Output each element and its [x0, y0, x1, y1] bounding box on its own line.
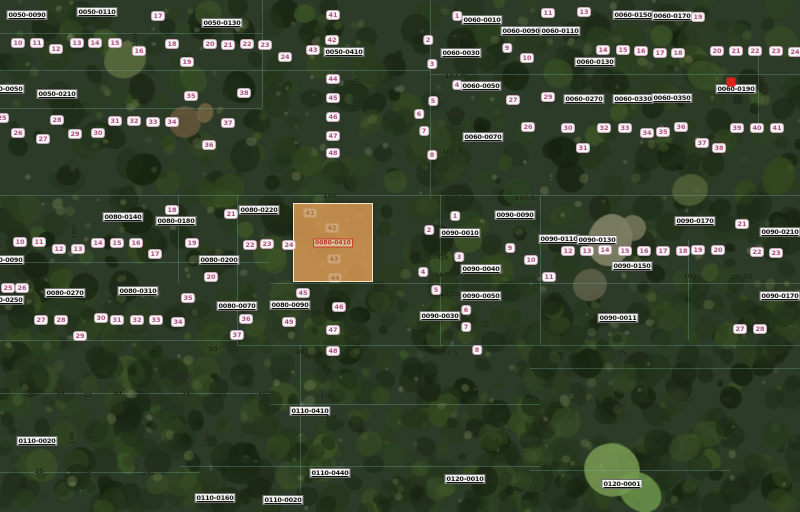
dimension-label: 100	[70, 225, 78, 239]
parcel-id-label[interactable]: 0080-0070	[216, 301, 257, 311]
lot-number-label: 24	[282, 240, 296, 250]
parcel-id-label[interactable]: 0060-0070	[462, 132, 503, 142]
parcel-id-label[interactable]: 0050-0090	[6, 10, 47, 20]
lot-number-label: 16	[637, 246, 651, 256]
lot-number-label: 16	[634, 46, 648, 56]
dimension-label: 107	[89, 430, 97, 444]
parcel-id-label[interactable]: 0090-0011	[597, 313, 638, 323]
dimension-label: 25	[141, 469, 150, 477]
dimension-label: 110	[353, 78, 361, 92]
dimension-label: 25	[683, 395, 692, 403]
lot-number-label: 23	[258, 40, 272, 50]
lot-number-label: 14	[91, 238, 105, 248]
lot-number-label: 2	[423, 35, 433, 45]
parcel-id-label[interactable]: 0090-0170	[759, 291, 800, 301]
lot-number-label: 13	[577, 7, 591, 17]
lot-number-label: 43	[306, 45, 320, 55]
lot-number-label: 31	[108, 116, 122, 126]
lot-number-label: 12	[49, 44, 63, 54]
dimension-label: 25	[140, 392, 149, 400]
lot-number-label: 13	[71, 244, 85, 254]
parcel-id-label[interactable]: 0060-0010	[461, 15, 502, 25]
dimension-label: 75	[772, 349, 781, 357]
dimension-label: 75	[743, 273, 752, 281]
dimension-label: 100	[320, 392, 334, 400]
lot-number-label: 16	[132, 46, 146, 56]
lot-number-label: 26	[521, 122, 535, 132]
dimension-label: 25	[152, 346, 161, 354]
parcel-id-label[interactable]: 0110-0020	[262, 495, 303, 505]
parcel-id-label[interactable]: 0080-0220	[238, 205, 279, 215]
lot-number-label: 38	[712, 143, 726, 153]
lot-number-label: 17	[656, 246, 670, 256]
dimension-label: 107.0	[445, 72, 466, 80]
parcel-id-label[interactable]: 0090-0010	[439, 228, 480, 238]
lot-number-label: 47	[326, 131, 340, 141]
lot-number-label: 24	[278, 52, 292, 62]
parcel-id-label[interactable]: 0090-0170	[674, 216, 715, 226]
lot-number-label: 41	[770, 123, 784, 133]
lot-number-label: 5	[431, 285, 441, 295]
lot-number-label: 44	[326, 74, 340, 84]
lot-number-label: 32	[127, 116, 141, 126]
lot-number-label: 36	[202, 140, 216, 150]
parcel-id-label[interactable]: 0120-0001	[601, 479, 642, 489]
dimension-label: 50	[528, 395, 537, 403]
dimension-label: 107.5	[440, 290, 461, 298]
parcel-id-label[interactable]: 0080-0250	[0, 295, 25, 305]
parcel-id-label[interactable]: 0080-0310	[117, 286, 158, 296]
lot-number-label: 25	[1, 283, 15, 293]
dimension-label: 107.5	[445, 194, 466, 202]
lot-number-label: 18	[671, 48, 685, 58]
lot-number-label: 22	[748, 46, 762, 56]
dimension-label: 107.5	[448, 33, 469, 41]
parcel-id-label[interactable]: 0080-0090	[269, 300, 310, 310]
lot-number-label: 21	[729, 46, 743, 56]
parcel-id-label[interactable]: 0060-0130	[574, 57, 615, 67]
parcel-id-label[interactable]: 0080-0090	[0, 255, 25, 265]
dimension-label: 25	[27, 391, 36, 399]
lot-number-label: 35	[181, 293, 195, 303]
lot-number-label: 14	[88, 38, 102, 48]
lot-number-label: 46	[326, 112, 340, 122]
lot-number-label: 18	[165, 205, 179, 215]
lot-number-label: 37	[221, 118, 235, 128]
dimension-label: 100	[131, 33, 139, 47]
dimension-label: 50	[112, 389, 121, 397]
lot-number-label: 1	[450, 211, 460, 221]
lot-number-label: 33	[146, 117, 160, 127]
lot-number-label: 20	[710, 46, 724, 56]
lot-number-label: 30	[561, 123, 575, 133]
lot-number-label: 42	[325, 223, 339, 233]
lot-number-label: 11	[541, 8, 555, 18]
lot-number-label: 6	[414, 109, 424, 119]
dimension-label: 25	[82, 469, 91, 477]
parcel-id-label[interactable]: 0090-0040	[460, 264, 501, 274]
parcel-id-label[interactable]: 0110-0160	[194, 493, 235, 503]
lot-number-label: 4	[452, 80, 462, 90]
lot-number-label: 13	[70, 38, 84, 48]
lot-number-label: 19	[180, 57, 194, 67]
lot-number-label: 5	[428, 96, 438, 106]
dimension-label: 107.5	[442, 148, 463, 156]
lot-number-label: 8	[427, 150, 437, 160]
lot-number-label: 15	[108, 38, 122, 48]
lot-number-label: 19	[185, 238, 199, 248]
dimension-label: 75	[181, 390, 190, 398]
lot-number-label: 22	[750, 247, 764, 257]
dimension-label: 25	[217, 392, 226, 400]
parcel-id-label[interactable]: 0060-0330	[612, 94, 653, 104]
lot-number-label: 29	[68, 129, 82, 139]
lot-number-label: 1	[452, 11, 462, 21]
lot-number-label: 35	[184, 91, 198, 101]
aerial-imagery-canvas	[0, 0, 800, 512]
lot-number-label: 27	[733, 324, 747, 334]
lot-number-label: 28	[54, 315, 68, 325]
lot-number-label: 6	[461, 305, 471, 315]
lot-number-label: 40	[750, 123, 764, 133]
lot-number-label: 8	[472, 345, 482, 355]
parcel-id-label[interactable]: 0060-0110	[539, 26, 580, 36]
parcel-id-label[interactable]: 0050-0130	[201, 18, 242, 28]
parcel-id-label[interactable]: 0090-0130	[576, 235, 617, 245]
parcel-id-label[interactable]: 0060-0150	[612, 10, 653, 20]
parcel-id-label[interactable]: 0060-0030	[440, 48, 481, 58]
lot-number-label: 39	[730, 123, 744, 133]
dimension-label: 200	[758, 76, 766, 90]
lot-number-label: 9	[505, 243, 515, 253]
parcel-id-label[interactable]: 0060-0270	[563, 94, 604, 104]
dimension-label: 107.5	[438, 349, 459, 357]
lot-number-label: 30	[91, 128, 105, 138]
dimension-label: 107.5	[435, 271, 456, 279]
parcel-id-label[interactable]: 0090-0050	[460, 291, 501, 301]
dimension-label: 75	[257, 391, 266, 399]
parcel-id-label[interactable]: 0110-0440	[309, 468, 350, 478]
lot-number-label: 11	[32, 237, 46, 247]
lot-number-label: 17	[148, 249, 162, 259]
parcel-id-label[interactable]: 0060-0350	[651, 93, 692, 103]
lot-number-label: 27	[506, 95, 520, 105]
parcel-id-label[interactable]: 0050-0210	[36, 89, 77, 99]
lot-number-label: 29	[73, 331, 87, 341]
lot-number-label: 29	[541, 92, 555, 102]
lot-number-label: 21	[735, 219, 749, 229]
lot-number-label: 12	[52, 244, 66, 254]
lot-number-label: 23	[769, 46, 783, 56]
lot-number-label: 14	[598, 245, 612, 255]
lot-number-label: 19	[691, 12, 705, 22]
lot-number-label: 34	[640, 128, 654, 138]
lot-number-label: 23	[260, 239, 274, 249]
lot-number-label: 15	[616, 45, 630, 55]
parcel-id-label[interactable]: 0060-0190	[715, 84, 756, 94]
parcel-id-label[interactable]: 0090-0090	[494, 210, 535, 220]
lot-number-label: 45	[326, 93, 340, 103]
lot-number-label: 41	[326, 10, 340, 20]
dimension-label: 25	[617, 349, 626, 357]
lot-number-label: 33	[149, 315, 163, 325]
lot-number-label: 20	[204, 272, 218, 282]
lot-number-label: 15	[618, 246, 632, 256]
lot-number-label: 2	[424, 225, 434, 235]
parcel-id-label[interactable]: 0080-0270	[44, 288, 85, 298]
parcel-id-label[interactable]: 0080-0140	[102, 212, 143, 222]
lot-number-label: 37	[695, 138, 709, 148]
lot-number-label: 34	[165, 117, 179, 127]
lot-number-label: 18	[676, 246, 690, 256]
dimension-label: 25	[83, 391, 92, 399]
lot-number-label: 16	[129, 238, 143, 248]
dimension-label: 100	[323, 192, 337, 200]
lot-number-label: 19	[691, 245, 705, 255]
dimension-label: 110	[220, 473, 228, 487]
parcel-id-label[interactable]: 0050-0410	[323, 47, 364, 57]
lot-number-label: 41	[303, 208, 317, 218]
lot-number-label: 23	[769, 248, 783, 258]
lot-number-label: 14	[596, 45, 610, 55]
lot-number-label: 20	[203, 39, 217, 49]
lot-number-label: 10	[520, 53, 534, 63]
dimension-label: 107.5	[515, 194, 536, 202]
parcel-id-label[interactable]: 0040-0050	[0, 84, 25, 94]
red-dot-marker	[727, 78, 736, 87]
dimension-label: 107.5	[428, 253, 449, 261]
parcel-id-label[interactable]: 0090-0150	[611, 261, 652, 271]
dimension-label: 50	[208, 345, 217, 353]
lot-number-label: 48	[326, 346, 340, 356]
lot-number-label: 10	[13, 237, 27, 247]
dimension-label: 107	[295, 348, 309, 356]
lot-number-label: 31	[576, 143, 590, 153]
lot-number-label: 26	[15, 283, 29, 293]
lot-number-label: 37	[230, 330, 244, 340]
dimension-label: 25	[577, 393, 586, 401]
parcel-id-label[interactable]: 0110-0020	[16, 436, 57, 446]
parcel-id-label[interactable]: 0060-0090	[500, 26, 541, 36]
selected-parcel-id-label: 0080-0410	[313, 238, 353, 247]
lot-number-label: 20	[711, 245, 725, 255]
parcel-id-label[interactable]: 0120-0010	[444, 474, 485, 484]
parcel-id-label[interactable]: 0050-0110	[76, 7, 117, 17]
lot-number-label: 47	[326, 325, 340, 335]
dimension-label: 100	[325, 413, 339, 421]
parcel-id-label[interactable]: 0060-0050	[460, 81, 501, 91]
dimension-label: 25	[722, 396, 731, 404]
lot-number-label: 30	[94, 313, 108, 323]
lot-number-label: 31	[110, 315, 124, 325]
lot-number-label: 49	[282, 317, 296, 327]
lot-number-label: 3	[427, 59, 437, 69]
lot-number-label: 10	[524, 255, 538, 265]
lot-number-label: 34	[171, 317, 185, 327]
lot-number-label: 15	[110, 238, 124, 248]
lot-number-label: 46	[332, 302, 346, 312]
lot-number-label: 21	[224, 209, 238, 219]
lot-number-label: 13	[580, 246, 594, 256]
lot-number-label: 36	[239, 314, 253, 324]
lot-number-label: 32	[130, 315, 144, 325]
dimension-label: 25	[730, 273, 739, 281]
lot-number-label: 36	[674, 122, 688, 132]
lot-number-label: 32	[597, 123, 611, 133]
lot-number-label: 3	[454, 252, 464, 262]
dimension-label: 150	[203, 433, 211, 447]
parcel-id-label[interactable]: 0080-0180	[155, 216, 196, 226]
lot-number-label: 28	[50, 115, 64, 125]
lot-number-label: 42	[325, 35, 339, 45]
lot-number-label: 21	[221, 40, 235, 50]
dimension-label: 50	[55, 389, 64, 397]
lot-number-label: 33	[618, 123, 632, 133]
lot-number-label: 28	[753, 324, 767, 334]
lot-number-label: 17	[151, 11, 165, 21]
lot-number-label: 45	[296, 288, 310, 298]
lot-number-label: 27	[36, 134, 50, 144]
lot-number-label: 22	[243, 240, 257, 250]
lot-number-label: 26	[11, 128, 25, 138]
lot-number-label: 4	[418, 267, 428, 277]
lot-number-label: 25	[0, 113, 9, 123]
lot-number-label: 38	[237, 88, 251, 98]
parcel-id-label[interactable]: 0090-0030	[419, 311, 460, 321]
lot-number-label: 9	[502, 43, 512, 53]
lot-number-label: 44	[328, 273, 342, 283]
lot-number-label: 22	[240, 39, 254, 49]
lot-number-label: 12	[561, 246, 575, 256]
dimension-label: 75	[635, 395, 644, 403]
lot-number-label: 18	[165, 39, 179, 49]
lot-number-label: 35	[656, 127, 670, 137]
lot-number-label: 17	[653, 48, 667, 58]
lot-number-label: 10	[11, 38, 25, 48]
lot-number-label: 7	[461, 322, 471, 332]
dimension-label: 100	[683, 272, 697, 280]
lot-number-label: 7	[419, 126, 429, 136]
parcel-id-label[interactable]: 0080-0200	[198, 255, 239, 265]
dimension-label: 107.5	[445, 109, 466, 117]
lot-number-label: 11	[542, 272, 556, 282]
parcel-id-label[interactable]: 0090-0210	[759, 227, 800, 237]
lot-number-label: 24	[788, 47, 800, 57]
parcel-id-label[interactable]: 0090-0110	[538, 234, 579, 244]
map-viewport[interactable]: 0050-00900050-01100050-01300040-00500050…	[0, 0, 800, 512]
parcel-id-label[interactable]: 0060-0170	[651, 11, 692, 21]
lot-number-label: 43	[327, 254, 341, 264]
lot-number-label: 48	[326, 148, 340, 158]
lot-number-label: 27	[34, 315, 48, 325]
dimension-label: 100	[68, 431, 76, 445]
lot-number-label: 11	[30, 38, 44, 48]
dimension-label: 25	[34, 467, 43, 475]
